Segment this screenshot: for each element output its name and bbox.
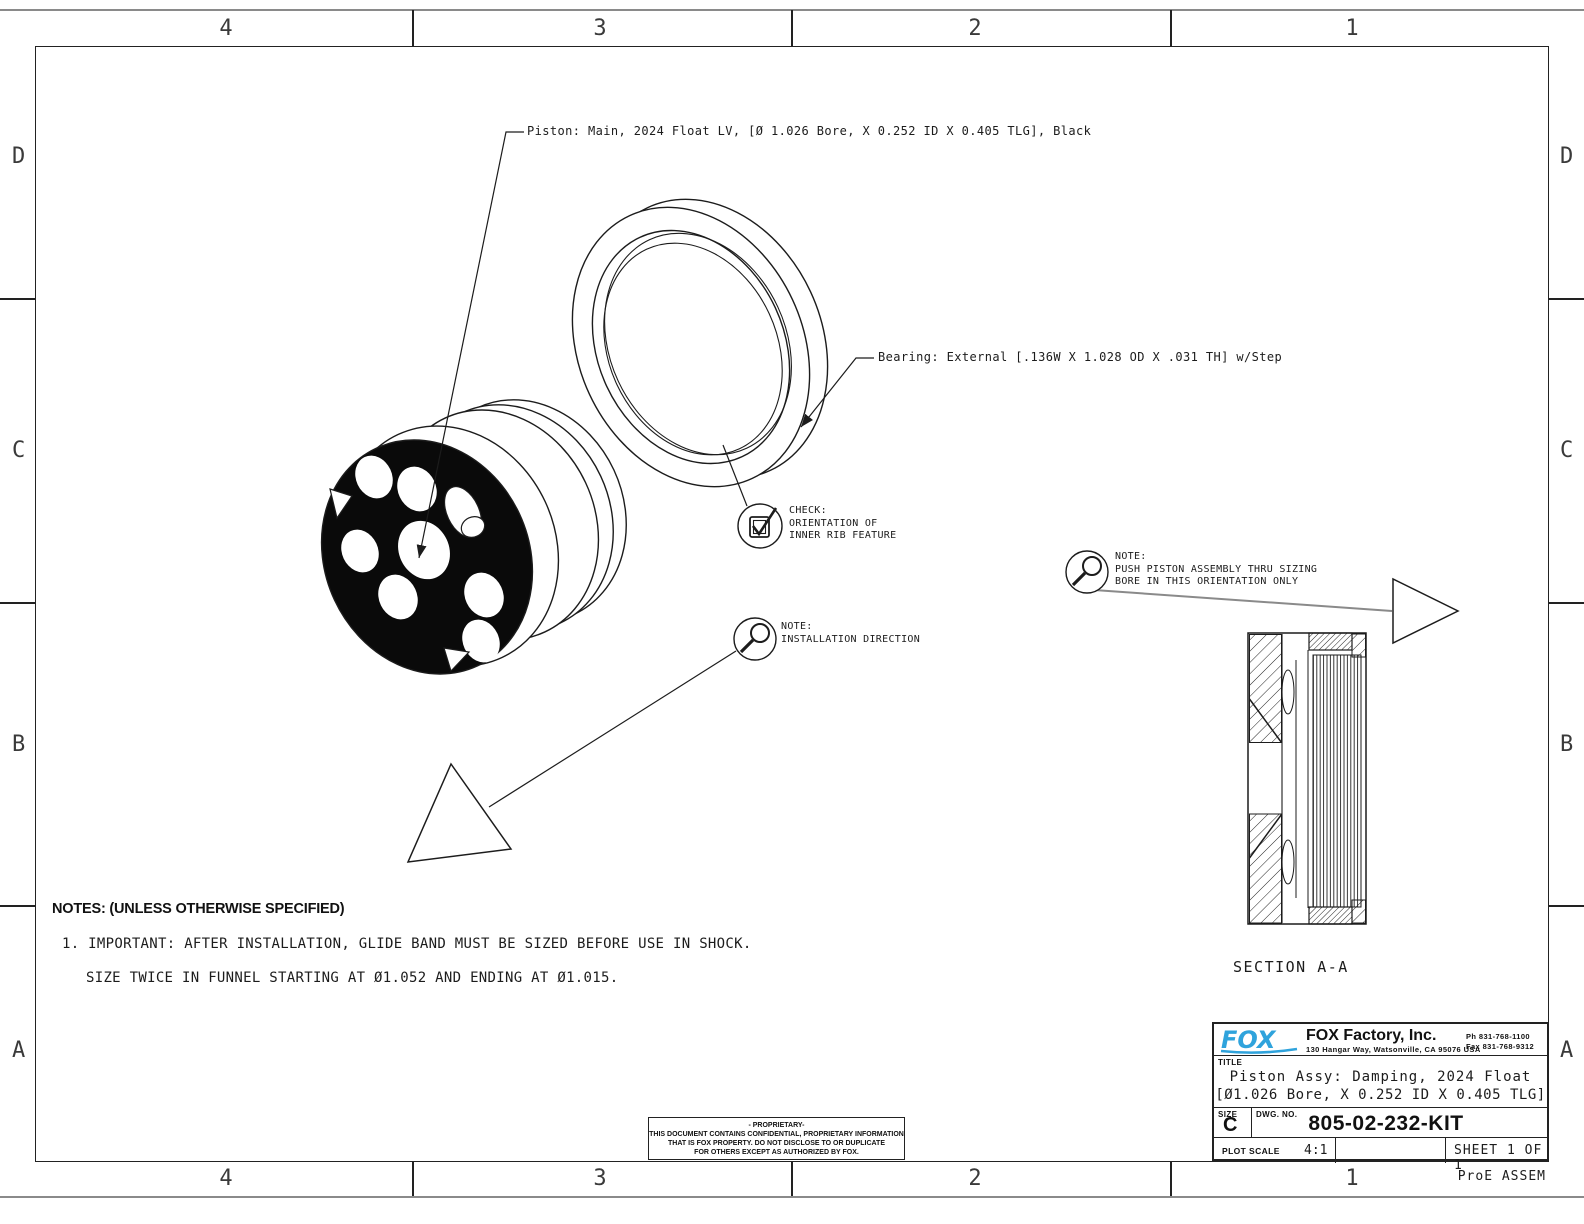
proprietary-line: FOR OTHERS EXCEPT AS AUTHORIZED BY FOX.	[649, 1148, 904, 1157]
proprietary-box: - PROPRIETARY- THIS DOCUMENT CONTAINS CO…	[648, 1117, 905, 1160]
fox-logo: FOX	[1219, 1026, 1301, 1054]
title-block-divider	[1214, 1137, 1547, 1138]
magnifier-icon-push	[1066, 551, 1108, 593]
title-block-divider	[1214, 1107, 1547, 1108]
svg-text:FOX: FOX	[1221, 1026, 1277, 1054]
dwg-number: 805-02-232-KIT	[1256, 1112, 1516, 1136]
proe-assem-label: ProE ASSEM	[1380, 1169, 1546, 1184]
title-block-divider	[1214, 1055, 1547, 1056]
notes-line-2: SIZE TWICE IN FUNNEL STARTING AT Ø1.052 …	[86, 970, 618, 986]
section-view	[1248, 633, 1366, 924]
install-note-callout: NOTE: INSTALLATION DIRECTION	[781, 621, 920, 646]
check-icon	[738, 504, 782, 548]
proprietary-line: THIS DOCUMENT CONTAINS CONFIDENTIAL, PRO…	[649, 1130, 904, 1139]
piston-callout: Piston: Main, 2024 Float LV, [Ø 1.026 Bo…	[527, 124, 1091, 138]
company-fax: Fax 831-768-9312	[1466, 1042, 1534, 1051]
title-block-divider	[1335, 1137, 1336, 1163]
title-block-divider	[1251, 1107, 1252, 1137]
section-label: SECTION A-A	[1233, 958, 1349, 976]
notes-line-1: 1. IMPORTANT: AFTER INSTALLATION, GLIDE …	[62, 936, 752, 952]
direction-arrow-right	[1393, 579, 1458, 643]
notes-header: NOTES: (UNLESS OTHERWISE SPECIFIED)	[52, 901, 344, 917]
size-value: C	[1223, 1114, 1237, 1137]
company-phone: Ph 831-768-1100	[1466, 1032, 1530, 1041]
bearing-callout: Bearing: External [.136W X 1.028 OD X .0…	[878, 350, 1282, 364]
company-address: 130 Hangar Way, Watsonville, CA 95076 US…	[1306, 1045, 1481, 1054]
drawing-title-line2: [Ø1.026 Bore, X 0.252 ID X 0.405 TLG]	[1214, 1087, 1547, 1103]
sizing-bore-direction-line	[1094, 590, 1392, 611]
check-callout: CHECK: ORIENTATION OF INNER RIB FEATURE	[789, 505, 896, 543]
title-block: FOX FOX Factory, Inc. 130 Hangar Way, Wa…	[1212, 1022, 1549, 1161]
magnifier-icon-install	[734, 618, 776, 660]
proprietary-line: - PROPRIETARY-	[649, 1121, 904, 1130]
push-note-callout: NOTE: PUSH PISTON ASSEMBLY THRU SIZING B…	[1115, 551, 1317, 589]
proprietary-line: THAT IS FOX PROPERTY. DO NOT DISCLOSE TO…	[649, 1139, 904, 1148]
drawing-title-line1: Piston Assy: Damping, 2024 Float	[1214, 1069, 1547, 1085]
plot-scale-label: PLOT SCALE	[1222, 1146, 1280, 1156]
install-direction-leader	[489, 651, 736, 807]
title-block-divider	[1445, 1137, 1446, 1163]
title-label: TITLE	[1218, 1058, 1242, 1067]
installation-direction-arrow	[408, 764, 511, 862]
engineering-drawing-sheet: 4 3 2 1 4 3 2 1 D C B A D C B A	[0, 0, 1584, 1224]
plot-scale-value: 4:1	[1304, 1143, 1327, 1158]
company-name: FOX Factory, Inc.	[1306, 1027, 1436, 1045]
